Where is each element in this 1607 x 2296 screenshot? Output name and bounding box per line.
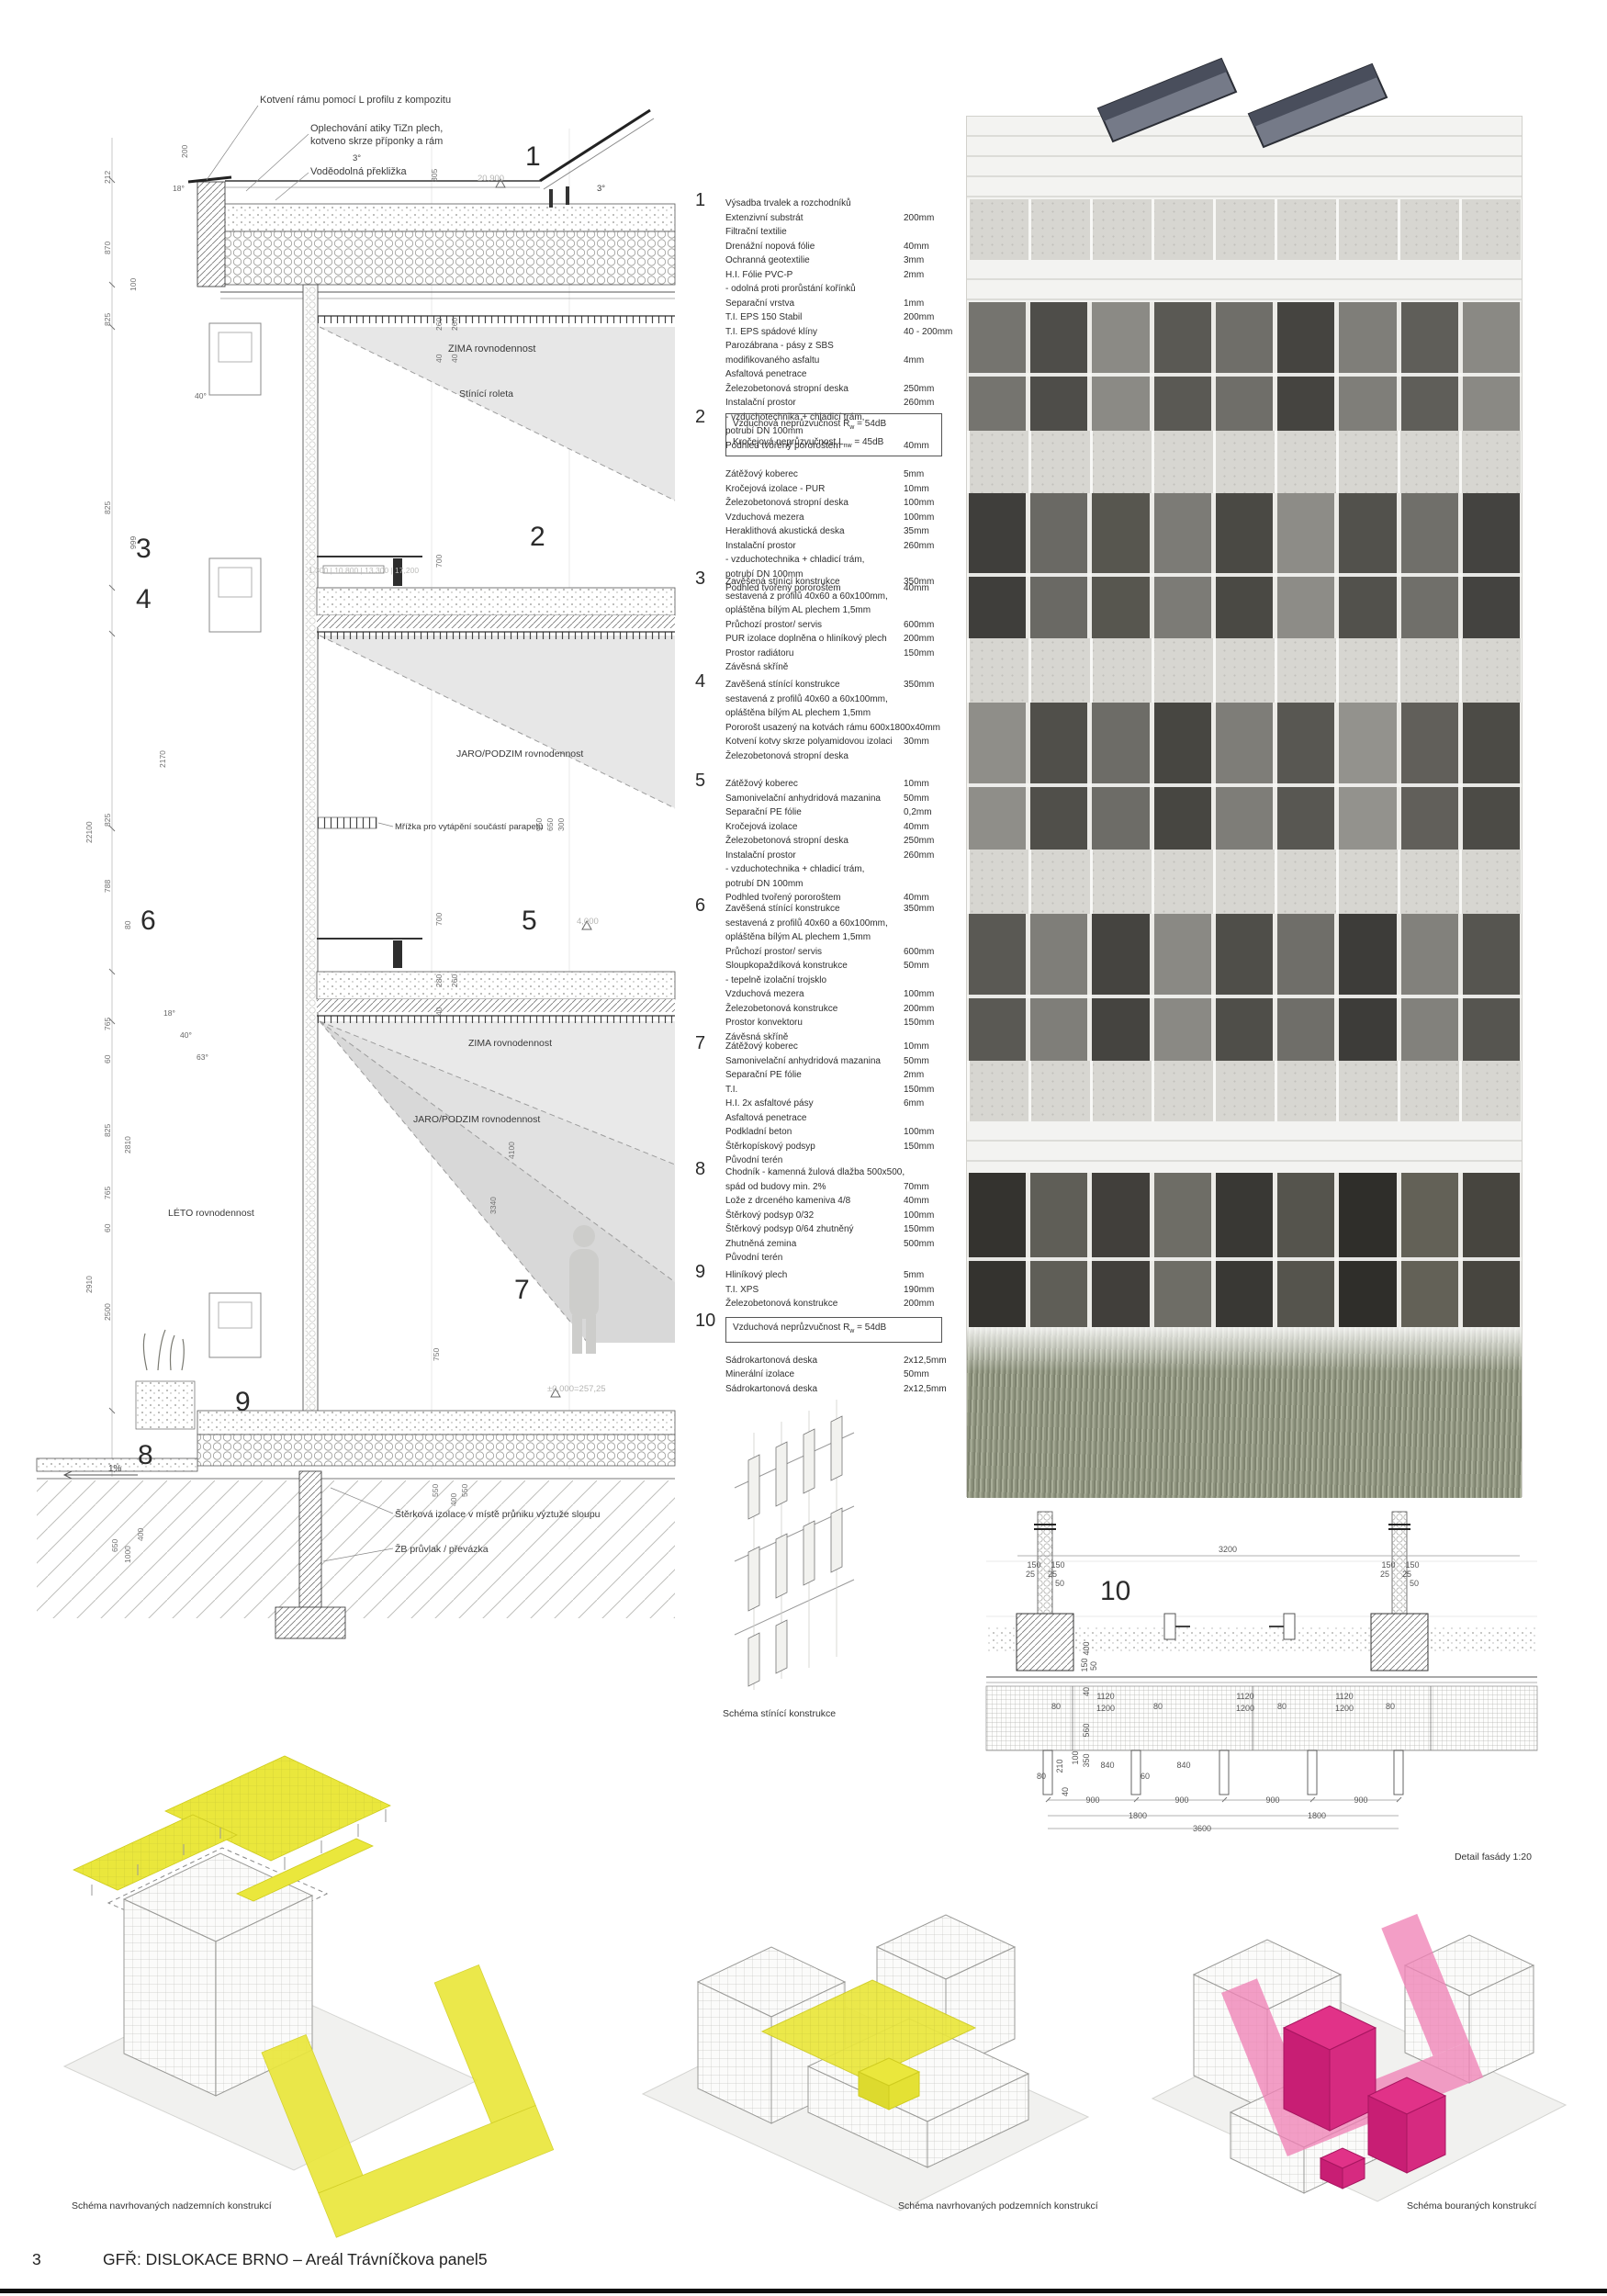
legend-row-label: Sádrokartonová deska: [725, 1356, 817, 1366]
soil-hatch: [37, 1480, 675, 1618]
dimension-label: 2810: [123, 1136, 132, 1154]
legend-row: Minerální izolace50mm: [725, 1367, 987, 1382]
dimension-label: 700: [434, 913, 444, 926]
panel-label: panel5: [439, 2250, 488, 2269]
legend-item-number: 8: [695, 1163, 705, 1177]
legend-row-value: 5mm: [904, 1268, 924, 1283]
dimension-label: 60: [103, 1223, 112, 1232]
legend-item-rows: Zavěšená stínící konstrukce350mmsestaven…: [725, 902, 987, 1044]
skylight-glazing-edge: [540, 110, 650, 181]
legend-row-value: 150mm: [904, 647, 934, 661]
legend-row-value: 200mm: [904, 310, 934, 325]
legend-row-value: 2x12,5mm: [904, 1354, 947, 1368]
legend-row-label: Zátěžový koberec: [725, 469, 798, 479]
dimension-label: 280: [434, 974, 444, 987]
acoustic-note-line: Vzduchová neprůzvučnost Rw = 54dB: [733, 417, 935, 435]
dimension-label: 400: [449, 1493, 458, 1506]
dimension-label: 825: [103, 1124, 112, 1137]
caption-facade-detail: Detail fasády 1:20: [1311, 1851, 1532, 1863]
legend-item-number: 10: [695, 1314, 715, 1329]
legend-row-label: Zavěšená stínící konstrukce: [725, 904, 840, 914]
legend-row-label: Hliníkový plech: [725, 1270, 787, 1280]
legend-row: Průchozí prostor/ servis600mm: [725, 945, 987, 960]
dimension-label: 825: [103, 814, 112, 827]
sheet-number: 3: [32, 2250, 41, 2269]
foundation-footing: [275, 1607, 345, 1638]
legend-row-label: opláštěna bílým AL plechem 1,5mm: [725, 932, 871, 942]
drawing-label: 50: [1410, 1579, 1419, 1588]
legend-row-value: 5mm: [904, 467, 924, 482]
legend-row-value: 30mm: [904, 735, 929, 749]
legend-row-value: 6mm: [904, 1097, 924, 1111]
legend-item-number: 7: [695, 1037, 705, 1052]
legend-row: opláštěna bílým AL plechem 1,5mm: [725, 603, 987, 618]
dimension-label: 210: [1055, 1759, 1064, 1773]
dimension-label: 788: [103, 880, 112, 893]
legend-row-value: 250mm: [904, 834, 934, 849]
legend-row-label: Filtrační textilie: [725, 227, 787, 237]
legend-row-label: Železobetonová konstrukce: [725, 1299, 837, 1309]
legend-row: Železobetonová konstrukce200mm: [725, 1002, 987, 1017]
legend-row-label: H.I. 2x asfaltové pásy: [725, 1098, 814, 1109]
acoustic-note-box: Vzduchová neprůzvučnost Rw = 54dBKročejo…: [725, 413, 942, 456]
drawing-label: 1200: [1335, 1704, 1354, 1713]
drawing-label: JARO/PODZIM rovnodennost: [456, 748, 583, 760]
dimension-label: 2170: [158, 750, 167, 768]
legend-row-value: 4mm: [904, 354, 924, 368]
legend-row-value: 200mm: [904, 632, 934, 647]
legend-row-value: 150mm: [904, 1140, 934, 1154]
drawing-label: ±0,000=257,25: [547, 1384, 606, 1394]
legend-item-rows: Sádrokartonová deska2x12,5mmMinerální iz…: [725, 1354, 987, 1397]
drawing-label: 80: [1051, 1702, 1061, 1711]
drawing-label: 3200: [1219, 1545, 1237, 1554]
legend-row: T.I. EPS 150 Stabil200mm: [725, 310, 987, 325]
legend-row-label: sestavená z profilů 40x60 a 60x100mm,: [725, 918, 888, 929]
drawing-label: 150: [1405, 1560, 1419, 1570]
legend-row-label: Kročejová izolace - PUR: [725, 484, 825, 494]
legend-row-value: 35mm: [904, 524, 929, 539]
legend-row-label: Průchozí prostor/ servis: [725, 620, 822, 630]
legend-row: Separační vrstva1mm: [725, 297, 987, 311]
dimension-label: 40: [434, 1007, 444, 1016]
acoustic-note-line: Vzduchová neprůzvučnost Rw = 54dB: [733, 1321, 935, 1339]
legend-row-value: 0,2mm: [904, 805, 932, 820]
caption-shading-scheme: Schéma stínící konstrukce: [723, 1708, 836, 1719]
legend-row-label: Samonivelační anhydridová mazanina: [725, 793, 881, 804]
legend-row-label: T.I. XPS: [725, 1285, 759, 1295]
legend-row-label: Instalační prostor: [725, 850, 796, 861]
dimension-label: 999: [129, 536, 138, 549]
legend-row: sestavená z profilů 40x60 a 60x100mm,: [725, 692, 987, 707]
sheet-footer: 3 GFŘ: DISLOKACE BRNO – Areál Trávníčkov…: [0, 2250, 1607, 2278]
legend-item-number: 9: [695, 1266, 705, 1280]
dimension-label: 825: [103, 501, 112, 514]
legend-row-value: 260mm: [904, 539, 934, 554]
dimension-label: 1000: [123, 1546, 132, 1563]
legend-row: - odolná proti prorůstání kořínků: [725, 282, 987, 297]
callout-number: 10: [1100, 1576, 1130, 1606]
legend-item-number: 5: [695, 774, 705, 789]
legend-item-rows: Zavěšená stínící konstrukce350mmsestaven…: [725, 678, 987, 763]
legend-row: Zhutněná zemina500mm: [725, 1237, 987, 1252]
legend-row: Výsadba trvalek a rozchodníků: [725, 197, 987, 211]
legend-row-label: Kročejová izolace: [725, 822, 797, 832]
drawing-label: 25: [1380, 1570, 1389, 1579]
legend-row-value: 250mm: [904, 382, 934, 397]
dimension-label: 560: [1082, 1723, 1091, 1737]
legend-row-label: modifikovaného asfaltu: [725, 355, 819, 366]
legend-row-value: 100mm: [904, 496, 934, 511]
drawing-label: 40°: [195, 391, 207, 400]
caption-underground: Schéma navrhovaných podzemních konstrukc…: [898, 2200, 1098, 2212]
legend-row: Asfaltová penetrace: [725, 367, 987, 382]
legend-row: T.I.150mm: [725, 1083, 987, 1097]
drawing-label: ZIMA rovnodennost: [448, 343, 535, 355]
drawing-label: 25: [1048, 1570, 1057, 1579]
legend-row-label: Štěrkopískový podsyp: [725, 1142, 815, 1152]
legend-row-label: Železobetonová stropní deska: [725, 384, 848, 394]
legend-row: H.I. Fólie PVC-P2mm: [725, 268, 987, 283]
legend-row-label: Vzduchová mezera: [725, 512, 804, 523]
legend-row: Extenzivní substrát200mm: [725, 211, 987, 226]
legend-row: Štěrkový podsyp 0/32100mm: [725, 1209, 987, 1223]
legend-row-label: T.I. EPS spádové klíny: [725, 327, 817, 337]
legend-row-value: 100mm: [904, 1125, 934, 1140]
callout-number: 4: [136, 584, 152, 614]
legend-row-value: 200mm: [904, 1297, 934, 1311]
legend-row: Drenážní nopová fólie40mm: [725, 240, 987, 254]
dimension-label: 765: [103, 1187, 112, 1199]
legend-row-label: Parozábrana - pásy z SBS: [725, 341, 834, 351]
drawing-label: ZIMA rovnodennost: [468, 1038, 552, 1049]
drawing-label: Štěrková izolace v místě průniku výztuže…: [395, 1508, 601, 1520]
legend-row: Heraklithová akustická deska35mm: [725, 524, 987, 539]
drawing-label: Stínící roleta: [459, 388, 513, 400]
legend-row: Samonivelační anhydridová mazanina50mm: [725, 792, 987, 806]
legend-row-value: 200mm: [904, 211, 934, 226]
drawing-label: 1%: [108, 1464, 122, 1474]
panel-page: Kotvení rámu pomocí L profilu z kompozit…: [0, 0, 1607, 2296]
drawing-label: 1200: [1096, 1704, 1115, 1713]
dimension-label: 260: [450, 318, 459, 331]
legend-row: Železobetonová konstrukce200mm: [725, 1297, 987, 1311]
legend-row-label: Železobetonová stropní deska: [725, 751, 848, 761]
legend-row-label: T.I.: [725, 1085, 737, 1095]
legend-row: Filtrační textilie: [725, 225, 987, 240]
legend-row: H.I. 2x asfaltové pásy6mm: [725, 1097, 987, 1111]
planter-grass: [136, 1370, 195, 1381]
legend-item-number: 3: [695, 572, 705, 587]
section-drawing: [37, 106, 675, 1638]
dimension-label: 2910: [84, 1276, 94, 1293]
legend-row: Sádrokartonová deska2x12,5mm: [725, 1382, 987, 1397]
dimension-label: 40: [434, 354, 444, 363]
legend-row-value: 150mm: [904, 1222, 934, 1237]
drawing-label: 3600: [1193, 1824, 1211, 1833]
legend-row: Parozábrana - pásy z SBS: [725, 339, 987, 354]
legend-item: 3 Zavěšená stínící konstrukce350mmsestav…: [693, 575, 987, 675]
detail-10-drawing: [986, 1512, 1537, 1829]
legend-row-value: 190mm: [904, 1283, 934, 1298]
concrete-column: [1017, 1614, 1073, 1671]
legend-item: 4 Zavěšená stínící konstrukce350mmsestav…: [693, 678, 987, 763]
legend-row-value: 600mm: [904, 945, 934, 960]
drawing-label: 150: [1381, 1560, 1395, 1570]
legend-row: modifikovaného asfaltu4mm: [725, 354, 987, 368]
legend-row-label: Instalační prostor: [725, 541, 796, 551]
dimension-label: 22100: [84, 821, 94, 843]
legend-row-label: Původní terén: [725, 1155, 782, 1165]
dimension-label: 60: [103, 1054, 112, 1064]
dimension-label: 80: [123, 920, 132, 929]
legend-row-label: Štěrkový podsyp 0/32: [725, 1210, 814, 1221]
legend-row-label: Prostor konvektoru: [725, 1018, 803, 1028]
drawing-label: JARO/PODZIM rovnodennost: [413, 1114, 540, 1125]
legend-row-label: Vzduchová mezera: [725, 989, 804, 999]
drawing-label: 900: [1174, 1795, 1188, 1805]
legend-row-label: Podkladní beton: [725, 1127, 792, 1137]
legend-row-value: 50mm: [904, 1054, 929, 1069]
drawing-label: 1120: [1096, 1692, 1114, 1701]
legend-item: 6 Zavěšená stínící konstrukce350mmsestav…: [693, 902, 987, 1044]
legend-row: Kročejová izolace40mm: [725, 820, 987, 835]
legend-row: Instalační prostor260mm: [725, 396, 987, 411]
legend-row: Železobetonová stropní deska100mm: [725, 496, 987, 511]
legend-row: Podkladní beton100mm: [725, 1125, 987, 1140]
callout-number: 5: [522, 906, 537, 936]
dimension-label: 350: [1082, 1753, 1091, 1767]
legend-row-value: 150mm: [904, 1083, 934, 1097]
legend-row-value: 10mm: [904, 482, 929, 497]
legend-row: Ochranná geotextilie3mm: [725, 253, 987, 268]
legend-row-label: Asfaltová penetrace: [725, 1113, 806, 1123]
legend-row-label: Štěrkový podsyp 0/64 zhutněný: [725, 1224, 854, 1234]
legend-row-value: 3mm: [904, 253, 924, 268]
dimension-label: 300: [556, 818, 566, 831]
legend-row-value: 40 - 200mm: [904, 325, 952, 340]
legend-row: Železobetonová stropní deska250mm: [725, 834, 987, 849]
legend-row: Závěsná skříně: [725, 660, 987, 675]
legend-row-label: Sloupkopaždíková konstrukce: [725, 961, 848, 971]
legend-row-label: opláštěna bílým AL plechem 1,5mm: [725, 605, 871, 615]
legend-row-label: Lože z drceného kameniva 4/8: [725, 1196, 850, 1206]
drawing-label: LÉTO rovnodennost: [168, 1207, 254, 1219]
dimension-label: 650: [110, 1539, 119, 1552]
legend-row-value: 500mm: [904, 1237, 934, 1252]
legend-row: Sádrokartonová deska2x12,5mm: [725, 1354, 987, 1368]
legend-row-value: 50mm: [904, 1367, 929, 1382]
dimension-label: 200: [180, 145, 189, 158]
legend-row: Prostor konvektoru150mm: [725, 1016, 987, 1030]
legend-row: - vzduchotechnika + chladicí trám,: [725, 862, 987, 877]
legend-row: Chodník - kamenná žulová dlažba 500x500,: [725, 1165, 987, 1180]
caption-demolition: Schéma bouraných konstrukcí: [1407, 2200, 1536, 2212]
legend-row-value: 2x12,5mm: [904, 1382, 947, 1397]
legend-row-label: Železobetonová stropní deska: [725, 836, 848, 846]
legend-row-value: 2mm: [904, 268, 924, 283]
caption-above-ground: Schéma navrhovaných nadzemních konstrukc…: [72, 2200, 272, 2212]
legend-row: Vzduchová mezera100mm: [725, 987, 987, 1002]
legend-row-value: 1mm: [904, 297, 924, 311]
legend-row: Sloupkopaždíková konstrukce50mm: [725, 959, 987, 974]
legend-row-label: - vzduchotechnika + chladicí trám,: [725, 864, 864, 874]
project-title: GFŘ: DISLOKACE BRNO – Areál Trávníčkova: [103, 2250, 434, 2269]
legend-item-rows: Zátěžový koberec10mmSamonivelační anhydr…: [725, 1040, 987, 1168]
drawing-label: 1800: [1129, 1811, 1147, 1820]
drawing-label: 150: [1027, 1560, 1040, 1570]
legend-row-label: - tepelně izolační trojsklo: [725, 975, 826, 985]
legend-row-label: Drenážní nopová fólie: [725, 242, 815, 252]
legend-row-value: 350mm: [904, 902, 934, 917]
dimension-label: 950: [534, 818, 544, 831]
legend-row-label: - vzduchotechnika + chladicí trám,: [725, 555, 864, 565]
legend-row-label: - odolná proti prorůstání kořínků: [725, 284, 856, 294]
legend-row: Hliníkový plech5mm: [725, 1268, 987, 1283]
concrete-column: [1371, 1614, 1428, 1671]
legend-item: 7 Zátěžový koberec10mmSamonivelační anhy…: [693, 1040, 987, 1168]
legend-row: Železobetonová stropní deska250mm: [725, 382, 987, 397]
drawing-label: 50: [1055, 1579, 1064, 1588]
legend-row: sestavená z profilů 40x60 a 60x100mm,: [725, 917, 987, 931]
drawing-label: 80: [1386, 1702, 1395, 1711]
callout-number: 9: [235, 1387, 251, 1417]
heating-grille: [318, 817, 376, 828]
dimension-label: 550: [460, 1484, 469, 1497]
legend-row-value: 350mm: [904, 575, 934, 590]
dimension-label: 260: [434, 318, 444, 331]
legend-row-value: 50mm: [904, 792, 929, 806]
legend-row: Instalační prostor260mm: [725, 849, 987, 863]
legend-row-label: Heraklithová akustická deska: [725, 526, 845, 536]
dimension-label: 2500: [103, 1303, 112, 1321]
legend-item-rows: Zátěžový koberec10mmSamonivelační anhydr…: [725, 777, 987, 906]
drawing-label: 3°: [353, 153, 361, 163]
legend-row-value: 40mm: [904, 1194, 929, 1209]
callout-number: 1: [525, 141, 541, 172]
legend-row-label: Původní terén: [725, 1253, 782, 1263]
dimension-label: 650: [545, 818, 555, 831]
legend-row-label: Průchozí prostor/ servis: [725, 947, 822, 957]
dimension-label: 40: [1061, 1787, 1070, 1796]
parapet: [197, 182, 225, 287]
legend-row-label: Závěsná skříně: [725, 662, 788, 672]
legend-row-label: T.I. EPS 150 Stabil: [725, 312, 802, 322]
dimension-label: 870: [103, 242, 112, 254]
dimension-label: 750: [432, 1348, 441, 1361]
dimension-label: 50: [1089, 1661, 1098, 1671]
legend-row-label: Kotvení kotvy skrze polyamidovou izolaci: [725, 737, 893, 747]
legend-row-label: Instalační prostor: [725, 398, 796, 408]
legend-row-label: Pororošt usazený na kotvách rámu 600x180…: [725, 723, 940, 733]
legend-item-number: 6: [695, 899, 705, 914]
suspended-cabinet: [209, 558, 261, 632]
legend-item-rows: Zavěšená stínící konstrukce350mmsestaven…: [725, 575, 987, 675]
legend-row: Štěrkopískový podsyp150mm: [725, 1140, 987, 1154]
foundation-pile: [299, 1471, 321, 1607]
legend-row-value: 40mm: [904, 240, 929, 254]
dimension-label: 4100: [507, 1142, 516, 1159]
drawing-label: 20,900: [478, 174, 504, 184]
drawing-label: 840: [1176, 1761, 1190, 1770]
drawing-label: 900: [1265, 1795, 1279, 1805]
legend-row: Instalační prostor260mm: [725, 539, 987, 554]
legend-row-label: Ochranná geotextilie: [725, 255, 810, 265]
callout-number: 6: [140, 906, 156, 936]
legend-row-label: potrubí DN 100mm: [725, 879, 803, 889]
axon-above-ground: [64, 1756, 554, 2237]
legend-item-rows: Hliníkový plech5mmT.I. XPS190mmŽelezobet…: [725, 1268, 987, 1311]
drawing-label: Kotvení rámu pomocí L profilu z kompozit…: [260, 95, 451, 106]
drawing-label: 18°: [163, 1008, 175, 1018]
dimension-label: 765: [103, 1018, 112, 1030]
legend-row-value: 100mm: [904, 511, 934, 525]
dimension-label: 825: [103, 313, 112, 326]
legend-row-label: Extenzivní substrát: [725, 213, 803, 223]
drawing-label: Mřížka pro vytápění součástí parapetu: [395, 822, 544, 832]
legend-row: Štěrkový podsyp 0/64 zhutněný150mm: [725, 1222, 987, 1237]
shading-scheme-sketch: [735, 1400, 854, 1690]
legend-row-label: Prostor radiátoru: [725, 648, 793, 658]
legend-row-label: Železobetonová konstrukce: [725, 1004, 837, 1014]
legend-row-label: PUR izolace doplněna o hliníkový plech: [725, 634, 887, 644]
legend-row-value: 2mm: [904, 1068, 924, 1083]
legend-row-label: Separační PE fólie: [725, 1070, 802, 1080]
legend-row: Separační PE fólie2mm: [725, 1068, 987, 1083]
legend-item-number: 1: [695, 194, 705, 208]
legend-row: T.I. XPS190mm: [725, 1283, 987, 1298]
legend-row-value: 260mm: [904, 849, 934, 863]
legend-row-label: Železobetonová stropní deska: [725, 498, 848, 508]
dimension-label: 400: [1082, 1641, 1091, 1655]
drawing-label: kotveno skrze příponky a rám: [310, 136, 443, 147]
dimension-label: 100: [129, 278, 138, 291]
legend-row: Samonivelační anhydridová mazanina50mm: [725, 1054, 987, 1069]
legend-row: Zavěšená stínící konstrukce350mm: [725, 575, 987, 590]
legend-row-label: Minerální izolace: [725, 1369, 794, 1379]
callout-number: 7: [514, 1275, 530, 1305]
dimension-label: 400: [136, 1528, 145, 1541]
legend-row-value: 600mm: [904, 618, 934, 633]
legend-item: 2 Vzduchová neprůzvučnost Rw = 54dBKroče…: [693, 413, 987, 596]
legend-row: spád od budovy min. 2%70mm: [725, 1180, 987, 1195]
legend-item-number: 4: [695, 675, 705, 690]
dimension-label: 700: [434, 555, 444, 568]
legend-row: Prostor radiátoru150mm: [725, 647, 987, 661]
legend-row: PUR izolace doplněna o hliníkový plech20…: [725, 632, 987, 647]
legend-row-value: 200mm: [904, 1002, 934, 1017]
legend-row: Původní terén: [725, 1251, 987, 1266]
legend-row: Pororošt usazený na kotvách rámu 600x180…: [725, 721, 987, 736]
legend-row: opláštěna bílým AL plechem 1,5mm: [725, 930, 987, 945]
legend-row-value: 40mm: [904, 820, 929, 835]
legend-row: Průchozí prostor/ servis600mm: [725, 618, 987, 633]
legend-item-rows: Chodník - kamenná žulová dlažba 500x500,…: [725, 1165, 987, 1266]
legend-row: Zátěžový koberec10mm: [725, 1040, 987, 1054]
legend-item-number: 2: [695, 411, 705, 425]
drawing-label: 3°: [597, 184, 605, 194]
legend-row-label: spád od budovy min. 2%: [725, 1182, 826, 1192]
drawing-label: 80: [1277, 1702, 1287, 1711]
shading-grate-band: [986, 1686, 1537, 1750]
axon-demolition: [1152, 1914, 1566, 2201]
legend-row-value: 100mm: [904, 1209, 934, 1223]
drawing-label: Voděodolná překližka: [310, 166, 407, 177]
legend-row: - vzduchotechnika + chladicí trám,: [725, 553, 987, 568]
legend-row: Kotvení kotvy skrze polyamidovou izolaci…: [725, 735, 987, 749]
legend-row-label: Zátěžový koberec: [725, 779, 798, 789]
acoustic-note-box: Vzduchová neprůzvučnost Rw = 54dB: [725, 1317, 942, 1343]
